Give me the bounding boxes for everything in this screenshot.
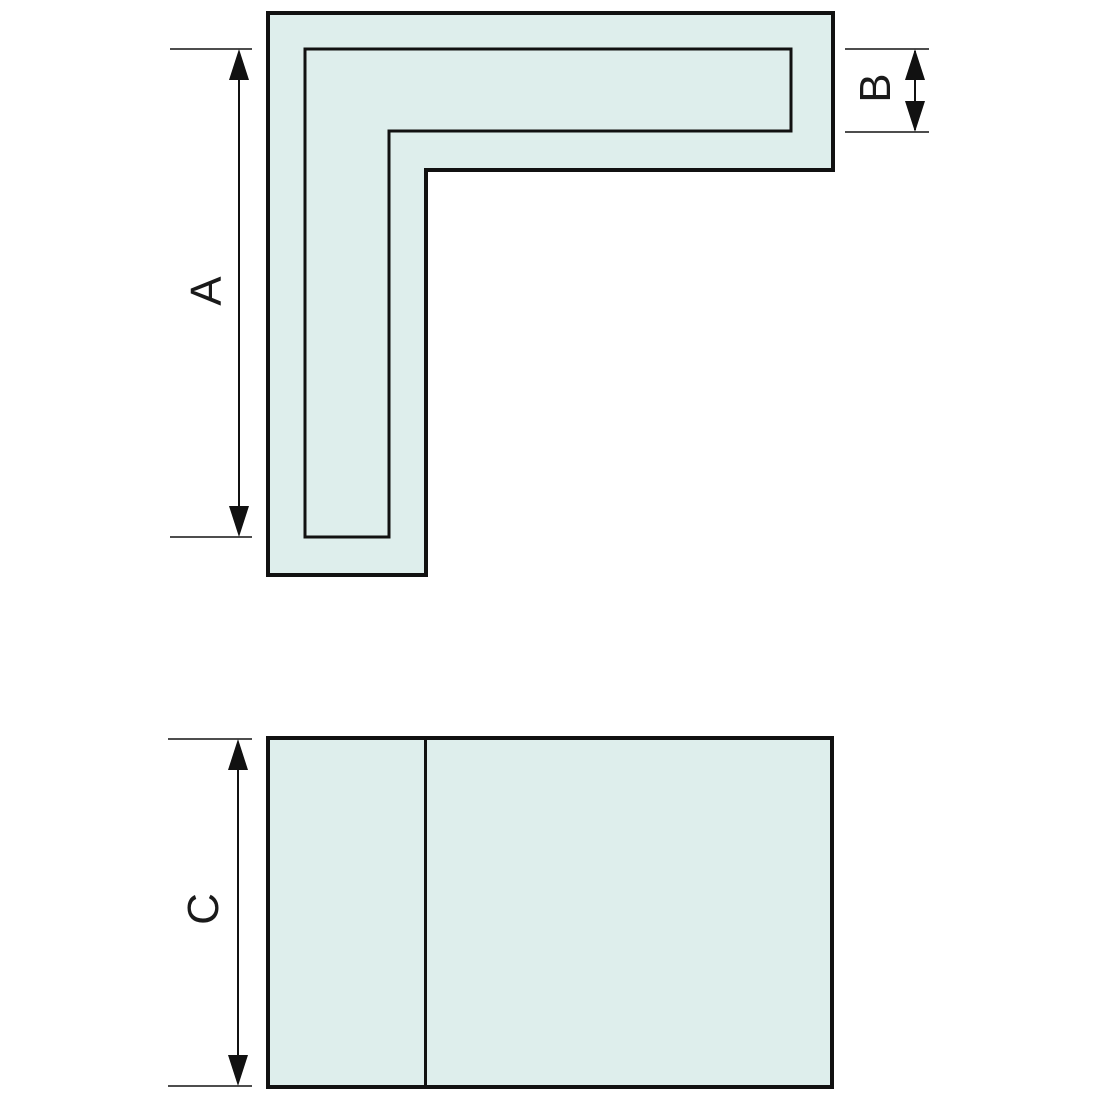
side-view (268, 738, 832, 1087)
front-view (268, 13, 833, 575)
dimension-c-label: C (164, 869, 244, 949)
dimension-c-arrowhead-down-icon (228, 1055, 248, 1086)
dimension-a-arrowhead-down-icon (229, 506, 249, 537)
dimension-c-arrowhead-up-icon (228, 739, 248, 770)
front-view-outer-profile (268, 13, 833, 575)
dimension-a-arrowhead-up-icon (229, 49, 249, 80)
technical-drawing-canvas: A B C (0, 0, 1100, 1100)
side-view-panel (268, 738, 832, 1087)
dimension-b-label: B (836, 48, 916, 128)
dimension-a-label: A (167, 251, 247, 331)
